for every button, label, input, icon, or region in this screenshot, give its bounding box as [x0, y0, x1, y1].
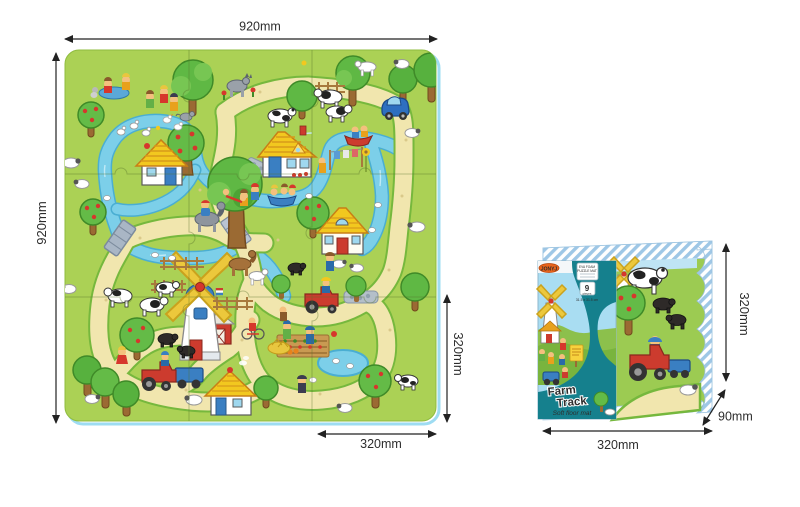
svg-text:PUZZLE MAT: PUZZLE MAT	[577, 269, 597, 273]
svg-text:pieces: pieces	[583, 292, 592, 296]
svg-text:JONYJ: JONYJ	[541, 267, 558, 273]
svg-text:320mm: 320mm	[360, 437, 402, 451]
svg-text:320mm: 320mm	[597, 438, 639, 452]
svg-text:Soft floor mat: Soft floor mat	[553, 410, 593, 417]
svg-text:90mm: 90mm	[718, 410, 753, 424]
svg-text:920mm: 920mm	[239, 20, 281, 34]
svg-text:31.5 x 31.5 cm: 31.5 x 31.5 cm	[576, 298, 598, 302]
svg-text:320mm: 320mm	[737, 292, 752, 335]
svg-text:320mm: 320mm	[451, 332, 466, 375]
svg-text:920mm: 920mm	[34, 201, 49, 244]
